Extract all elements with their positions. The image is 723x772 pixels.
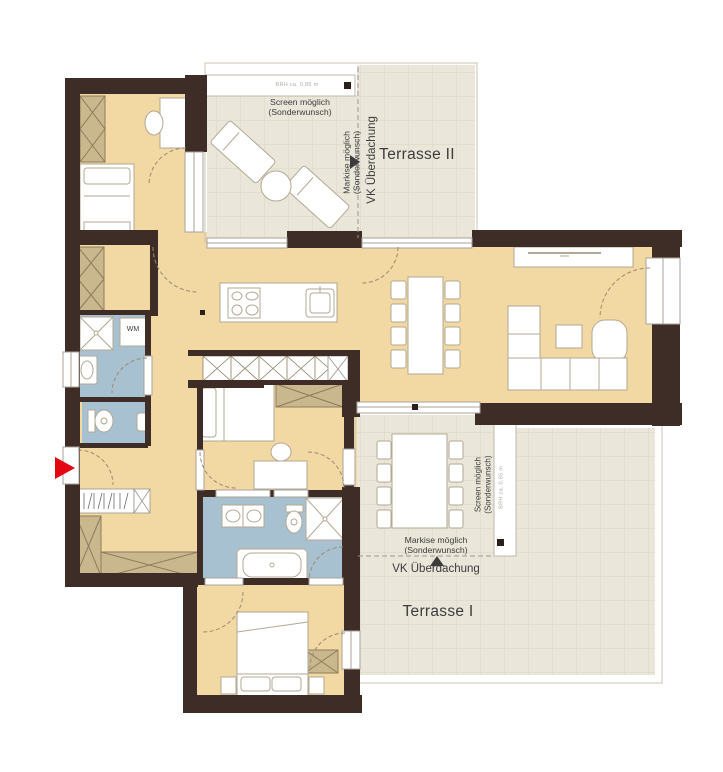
desk-bedroom-1	[160, 98, 188, 148]
single-bed-bedroom-2	[199, 384, 274, 441]
double-bed-bedroom-3	[237, 612, 308, 697]
toilet-wc	[88, 410, 113, 432]
shower-small	[80, 317, 113, 350]
bathroom-slider-opening-2	[274, 490, 308, 497]
terrace-1-parapet	[494, 418, 516, 556]
door-bedroom1-terrace	[185, 152, 203, 232]
post-marker	[200, 310, 205, 315]
coffee-table	[556, 325, 582, 348]
terrace-2-paving-right	[357, 65, 475, 240]
bedroom3-door-opening	[205, 578, 243, 585]
floor-plan: BRH ca. 0,85 m Screen möglich (Sonderwun…	[0, 0, 723, 772]
wardrobe-hall-niche	[78, 247, 104, 311]
entry-cabinet	[134, 489, 150, 513]
shaft	[328, 356, 348, 382]
door-living-terrace2	[362, 238, 472, 248]
double-washbasin	[222, 505, 264, 527]
wardrobe-bedroom-3	[305, 650, 338, 673]
coat-rack	[76, 489, 134, 513]
nightstand-right	[309, 677, 324, 694]
window-living-terrace1	[357, 402, 480, 413]
shower-room-door-opening	[144, 356, 152, 395]
washing-machine	[120, 318, 147, 346]
window-kitchen-terrace2	[207, 238, 287, 248]
bedroom2-terrace-opening	[343, 449, 355, 485]
terrace-1-paving-right	[516, 428, 655, 675]
sideboard-tv	[514, 247, 633, 267]
bathtub	[237, 549, 307, 581]
bathroom-slider-opening-1	[216, 490, 270, 497]
wardrobe-bedroom-1	[80, 96, 105, 162]
window-shower-room	[63, 352, 79, 387]
bathroom-door-opening	[309, 578, 343, 585]
dining-table-terrace	[377, 434, 463, 528]
wardrobe-bedroom-2	[276, 384, 343, 407]
door-bedroom3-terrace	[342, 631, 360, 669]
floor-plan-drawing	[0, 0, 723, 772]
shower-large	[306, 498, 344, 540]
toilet-bathroom	[286, 505, 303, 533]
nightstand-left	[221, 677, 236, 694]
bedroom2-door-opening	[196, 450, 204, 490]
terrace-1-paving-mid	[494, 556, 516, 675]
post-marker	[497, 539, 504, 546]
kitchen-island	[220, 283, 337, 322]
washbasin-shower-room	[78, 356, 97, 384]
terrace-2-parapet	[205, 75, 355, 96]
desk-chair-bedroom-2	[271, 443, 291, 461]
post-marker	[344, 82, 351, 89]
desk-bedroom-2	[254, 461, 307, 489]
hall-closet-strip	[203, 356, 343, 381]
terrace-side-table	[261, 171, 291, 201]
window-living-east	[646, 258, 680, 324]
desk-chair-bedroom-1	[145, 111, 163, 135]
single-bed-bedroom-1	[80, 164, 134, 236]
